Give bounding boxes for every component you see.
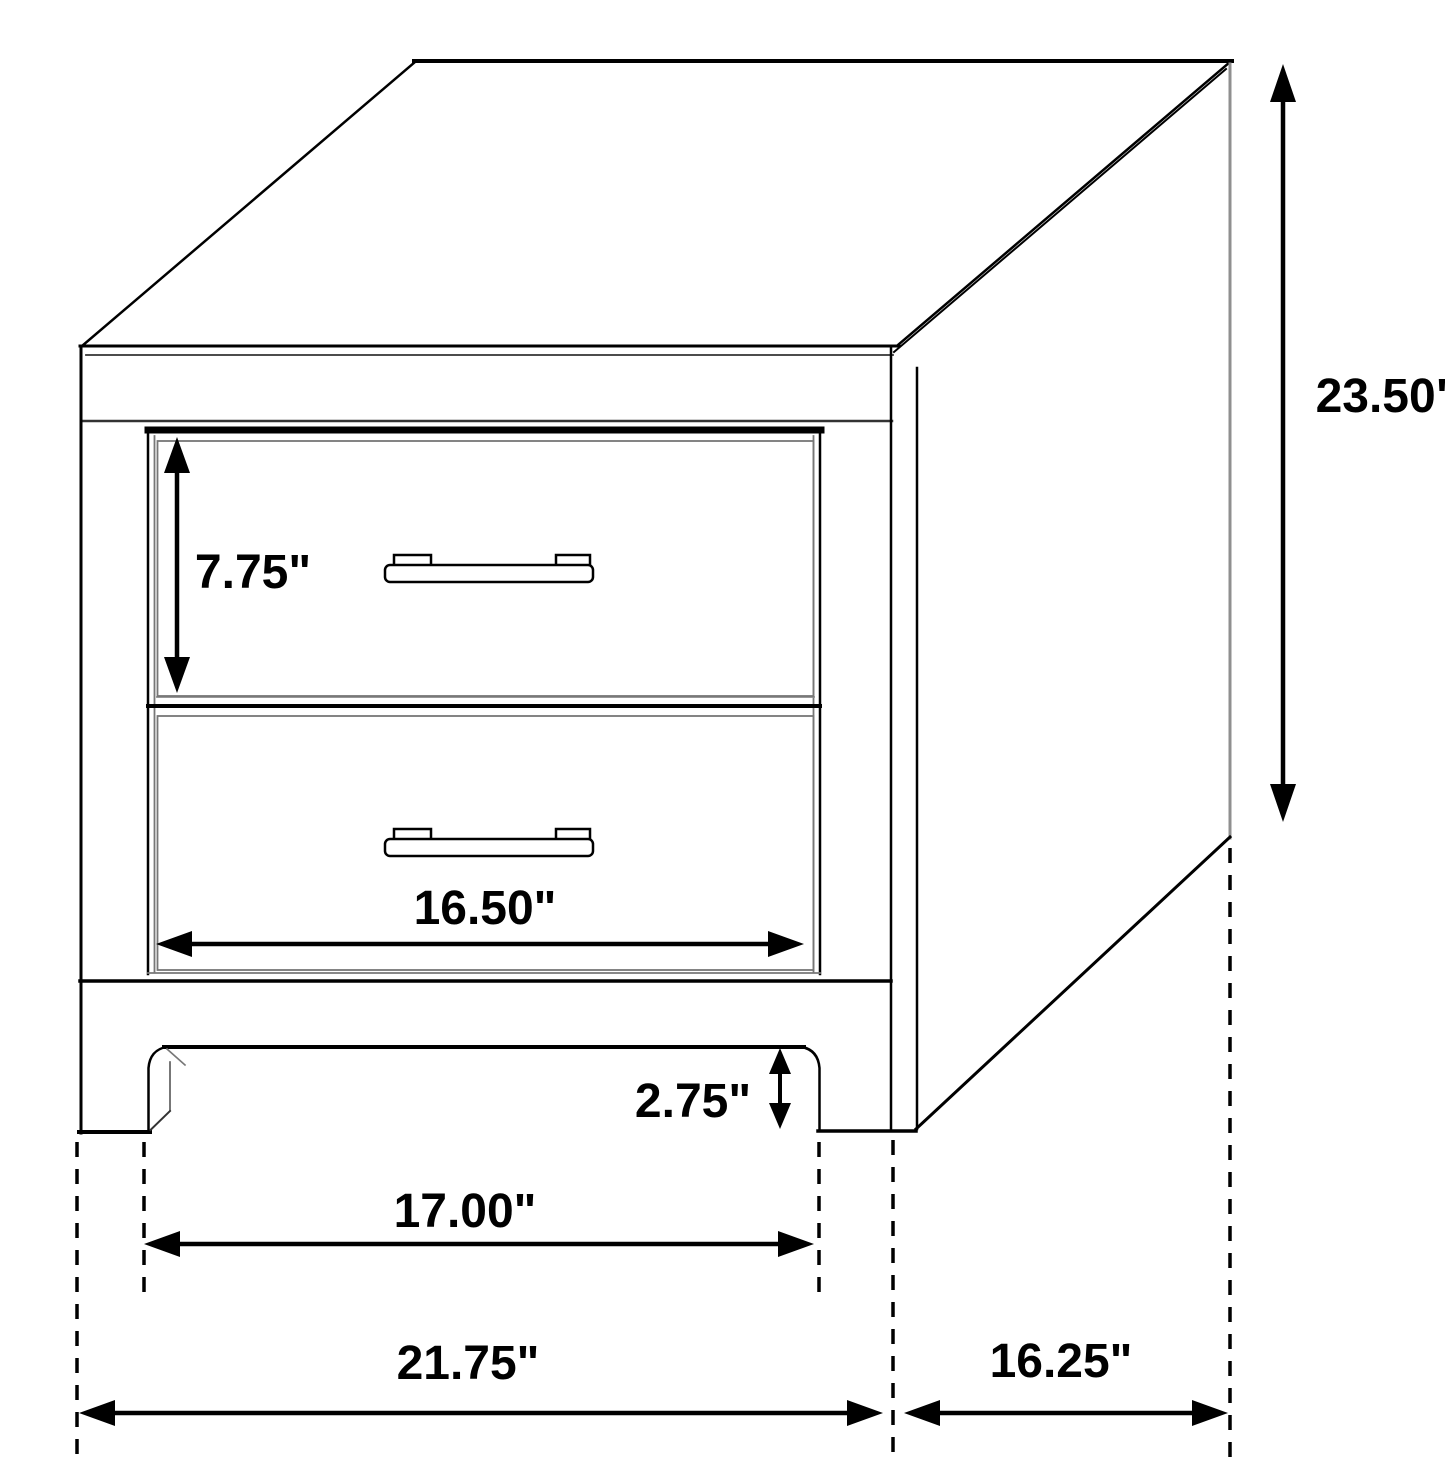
arrowhead-left-icon bbox=[904, 1400, 940, 1426]
dim-top-drawer-height: 7.75" bbox=[164, 437, 311, 693]
dim-drawer-width: 16.50" bbox=[156, 882, 804, 957]
dim-label-overall-height: 23.50" bbox=[1316, 370, 1445, 423]
drawer-1-handle bbox=[385, 555, 593, 582]
dim-overall-height: 23.50" bbox=[1270, 64, 1445, 822]
arrowhead-up-icon bbox=[1270, 64, 1296, 102]
dim-label-foot-height: 2.75" bbox=[635, 1075, 751, 1128]
arrowhead-right-icon bbox=[768, 931, 804, 957]
face-frame bbox=[79, 346, 916, 1133]
top-panel bbox=[80, 61, 1232, 430]
dim-overall-depth: 16.25" bbox=[904, 1335, 1228, 1426]
arrowhead-right-icon bbox=[1192, 1400, 1228, 1426]
dim-label-leg-inner-span: 17.00" bbox=[394, 1185, 537, 1238]
dim-leg-inner-span: 17.00" bbox=[144, 1185, 814, 1257]
arrowhead-down-icon bbox=[1270, 784, 1296, 822]
arrowhead-down-icon bbox=[769, 1103, 791, 1129]
arrowhead-left-icon bbox=[79, 1400, 115, 1426]
arrowhead-up-icon bbox=[164, 437, 190, 473]
arrowhead-left-icon bbox=[156, 931, 192, 957]
dim-label-drawer-width: 16.50" bbox=[414, 882, 557, 935]
arrowhead-down-icon bbox=[164, 657, 190, 693]
diagram-canvas: 23.50" 7.75" 16.50" 2.75" 17.00" 21.75" … bbox=[40, 16, 1445, 1461]
nightstand-dimension-diagram: 23.50" 7.75" 16.50" 2.75" 17.00" 21.75" … bbox=[40, 16, 1445, 1461]
dim-foot-height: 2.75" bbox=[635, 1048, 791, 1129]
arrowhead-left-icon bbox=[144, 1231, 180, 1257]
side-panel bbox=[891, 64, 1230, 1131]
arrowhead-up-icon bbox=[769, 1048, 791, 1074]
arrowhead-right-icon bbox=[847, 1400, 883, 1426]
drawer-2-handle bbox=[385, 829, 593, 856]
dim-label-top-drawer-height: 7.75" bbox=[195, 546, 311, 599]
arrowhead-right-icon bbox=[778, 1231, 814, 1257]
dim-overall-width: 21.75" bbox=[79, 1337, 883, 1426]
dim-label-overall-depth: 16.25" bbox=[990, 1335, 1133, 1388]
dim-label-overall-width: 21.75" bbox=[397, 1337, 540, 1390]
